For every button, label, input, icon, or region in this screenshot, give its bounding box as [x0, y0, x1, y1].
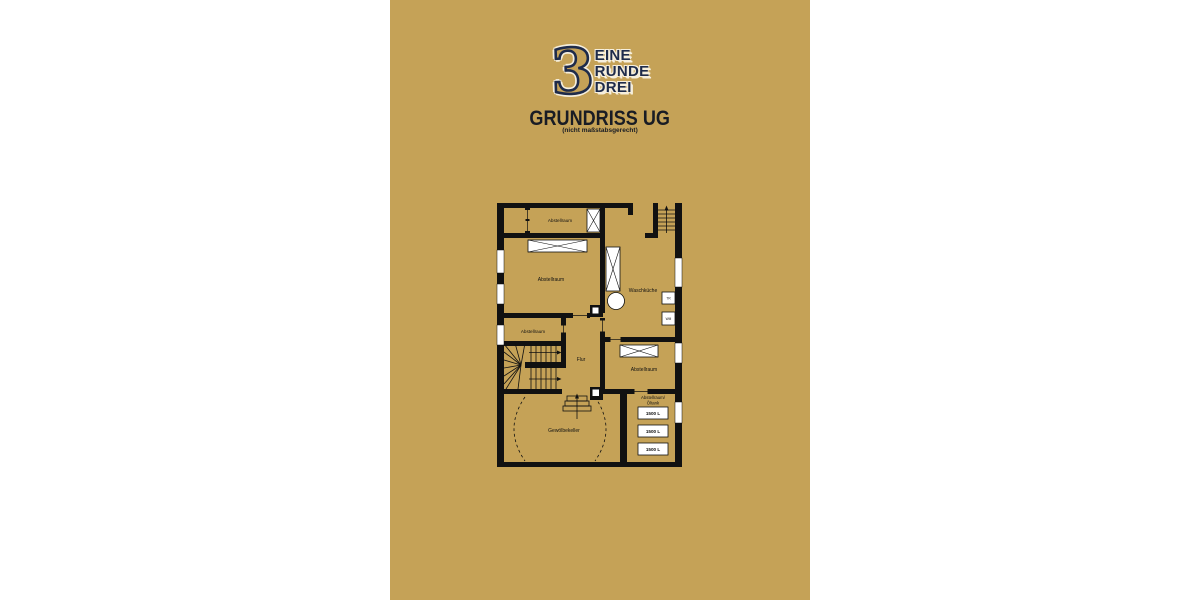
staircase-upper-right — [658, 206, 675, 234]
window-right-2 — [675, 343, 682, 363]
label-storage-top: Abstellraum — [548, 218, 572, 223]
label-storage-mid: Abstellraum — [521, 329, 545, 334]
label-washer: WM — [666, 317, 672, 321]
floorplan-svg: Abstellraum Abstellraum Abstellraum Flur… — [493, 193, 693, 478]
label-cellar: Gewölbekeller — [548, 428, 580, 434]
label-tank-2: 1500 L — [646, 429, 660, 434]
window-left-1 — [497, 250, 504, 273]
logo-numeral-3: 3 — [550, 43, 595, 100]
logo: 3 EINE RUNDE DREI — [390, 44, 810, 100]
window-left-3 — [497, 325, 504, 345]
door-block-hall-upper — [590, 305, 603, 317]
logo-line-drei: DREI — [595, 80, 650, 96]
boiler-circle — [608, 293, 625, 310]
label-tankroom-1: Abstellraum/ — [641, 395, 666, 400]
label-storage-large: Abstellraum — [538, 277, 564, 283]
logo-wordmark: EINE RUNDE DREI — [595, 48, 650, 96]
label-hall: Flur — [577, 357, 586, 363]
gold-panel: 3 EINE RUNDE DREI GRUNDRISS UG (nicht ma… — [390, 0, 810, 600]
cellar-steps — [563, 394, 591, 420]
label-laundry: Waschküche — [629, 288, 658, 294]
logo-line-eine: EINE — [595, 48, 650, 64]
label-tank-3: 1500 L — [646, 447, 660, 452]
door-block-cellar — [590, 387, 603, 400]
label-dryer: TR — [666, 297, 671, 301]
page-subtitle: (nicht maßstabsgerecht) — [390, 127, 810, 134]
logo-line-runde: RUNDE — [595, 64, 650, 80]
label-storage-right: Abstellraum — [631, 367, 657, 373]
label-tank-1: 1500 L — [646, 411, 660, 416]
window-right-1 — [675, 258, 682, 287]
window-right-3 — [675, 402, 682, 423]
label-tankroom-2: Öltank — [647, 401, 660, 406]
window-left-2 — [497, 284, 504, 304]
poster-stage: 3 EINE RUNDE DREI GRUNDRISS UG (nicht ma… — [0, 0, 1200, 600]
